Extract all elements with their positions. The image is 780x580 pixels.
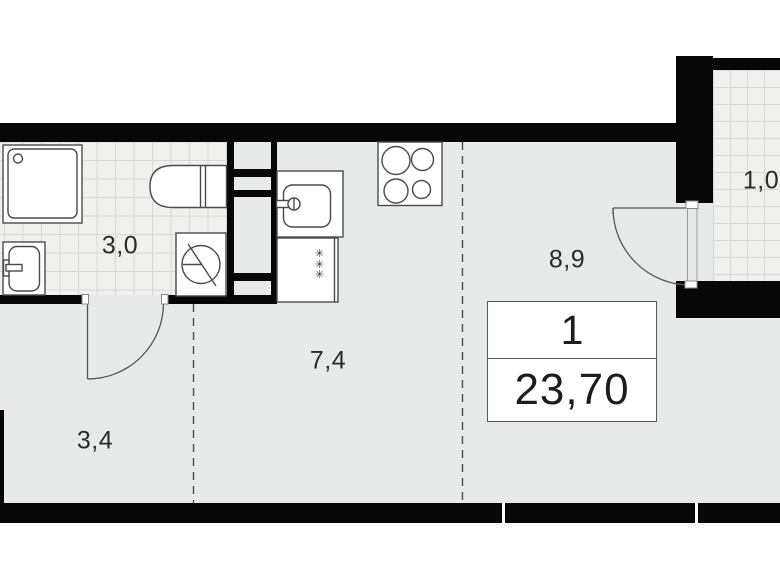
balcony-door-jamb-top xyxy=(686,201,698,209)
area-label-bathroom: 3,0 xyxy=(102,232,138,261)
balcony-door-jamb-bottom xyxy=(685,281,697,288)
appliance-mark: ✳ xyxy=(315,249,324,260)
shower-tray-icon xyxy=(3,145,82,223)
stove-icon xyxy=(378,142,442,206)
area-label-hallway: 3,4 xyxy=(77,427,113,456)
washbasin-icon xyxy=(3,242,45,295)
unit-info-card: 1 23,70 xyxy=(487,301,657,422)
appliance-mark: ✳ xyxy=(315,270,324,281)
toilet-icon xyxy=(150,166,227,208)
kitchen-sink-counter-icon xyxy=(277,171,344,237)
bathroom-door xyxy=(88,304,164,380)
balcony-door-sill-lines xyxy=(688,208,698,281)
balcony-door xyxy=(613,208,690,285)
bathroom-door-jamb-left xyxy=(82,295,89,305)
unit-rooms-count: 1 xyxy=(488,302,656,359)
dishwasher-counter-icon xyxy=(277,238,338,302)
floor-plan: ✳ ✳ ✳ 3,0 3,4 7,4 8,9 1,0 1 23,70 xyxy=(0,0,780,580)
appliance-marks: ✳ ✳ ✳ xyxy=(313,249,326,281)
area-label-kitchen: 7,4 xyxy=(310,347,346,376)
area-label-balcony: 1,0 xyxy=(743,167,779,196)
washing-machine-icon xyxy=(176,233,226,296)
fixtures-layer xyxy=(0,0,780,580)
bathroom-door-jamb-right xyxy=(162,295,169,305)
area-label-living-room: 8,9 xyxy=(549,246,585,275)
unit-total-area: 23,70 xyxy=(488,359,656,421)
